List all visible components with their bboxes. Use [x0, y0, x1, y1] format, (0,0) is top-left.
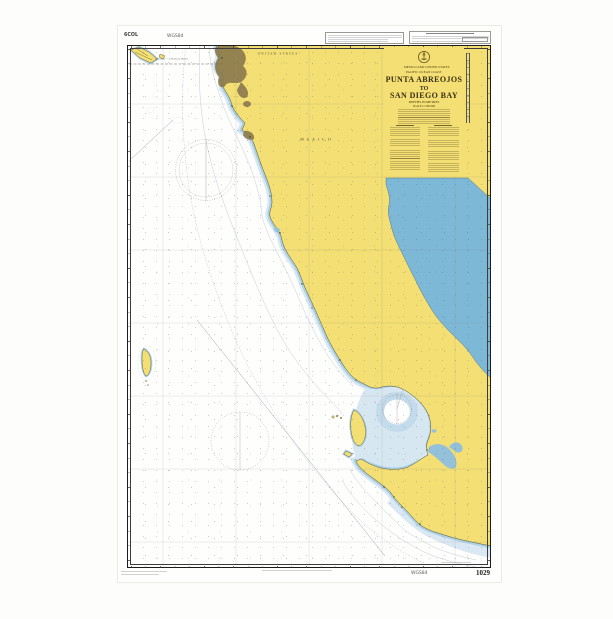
admiralty-crest-icon: [417, 50, 431, 64]
top-inner-note: [137, 48, 213, 50]
title-line-1: PUNTA ABREOJOS: [384, 75, 464, 84]
label-united-states: UNITED STATES: [252, 52, 304, 55]
chart-number: 1029: [476, 569, 490, 577]
notes-heading: [396, 125, 414, 126]
fine-print-heading: [426, 33, 474, 34]
title-notes-paragraph: [398, 109, 450, 124]
bottom-margin-note: [262, 570, 332, 572]
notes-block: [428, 140, 459, 148]
title-block: MEXICO AND UNITED STATES PACIFIC OCEAN C…: [384, 47, 464, 176]
margin-note-box-right: [409, 31, 491, 44]
datum-label-top: WGS84: [167, 33, 184, 38]
border-ticks-left: [128, 49, 130, 565]
notes-block: [428, 163, 459, 172]
datum-label-bottom: WGS84: [411, 570, 428, 575]
title-nations: MEXICO AND UNITED STATES: [404, 66, 444, 69]
notes-block: [390, 139, 420, 147]
margin-note-box-left: [325, 32, 404, 44]
fine-print: [328, 39, 388, 42]
copyright-note: [121, 571, 167, 572]
border-ticks-bottom: [131, 566, 488, 568]
notes-block: [390, 127, 420, 136]
label-boundary: MEXICO — UNITED STATES: [155, 58, 184, 61]
notes-heading: [434, 125, 452, 126]
fine-print: [328, 35, 402, 38]
corner-code: 6COL: [124, 32, 138, 38]
title-depths-note: DEPTHS IN METRES: [402, 101, 446, 104]
fine-print-inset: [462, 37, 488, 42]
notes-block: [390, 161, 420, 171]
title-region: PACIFIC OCEAN COAST: [404, 71, 444, 74]
bottom-inner-note: [441, 562, 471, 564]
fine-print: [412, 41, 462, 44]
latitude-scale-ruler: [466, 53, 470, 123]
label-mexico: M E X I C O: [293, 138, 339, 142]
border-ticks-right: [488, 49, 490, 565]
notes-block: [428, 151, 459, 161]
copyright-note: [121, 574, 159, 575]
title-line-3: SAN DIEGO BAY: [384, 91, 464, 100]
notes-block: [428, 127, 459, 137]
title-scale-note: SCALE 1:1 000 000: [406, 105, 442, 108]
notes-block: [390, 150, 420, 159]
